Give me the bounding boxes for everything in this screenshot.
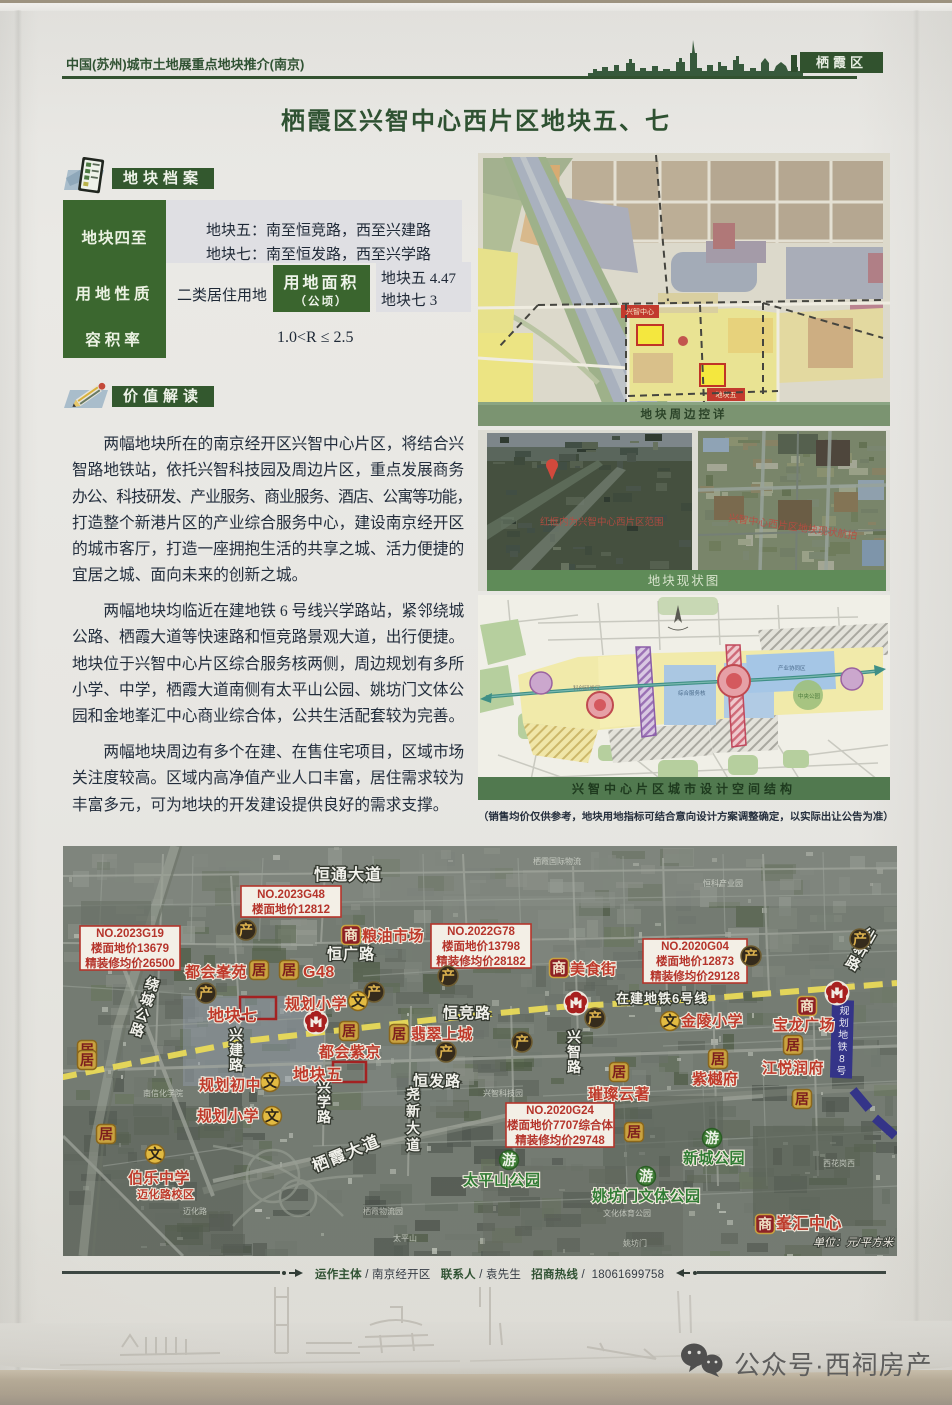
svg-text:产业协同区: 产业协同区 — [778, 664, 806, 672]
svg-text:恒竞路: 恒竞路 — [443, 1004, 491, 1022]
svg-text:游: 游 — [639, 1168, 653, 1184]
svg-text:楼面地价12873: 楼面地价12873 — [656, 954, 734, 968]
svg-text:居: 居 — [282, 962, 296, 978]
svg-text:红框内为兴智中心西片区范围: 红框内为兴智中心西片区范围 — [540, 516, 664, 528]
svg-text:商: 商 — [800, 998, 814, 1014]
svg-text:居: 居 — [711, 1051, 725, 1067]
svg-text:江悦润府: 江悦润府 — [762, 1059, 824, 1077]
svg-text:尧: 尧 — [406, 1086, 420, 1102]
svg-text:新城公园: 新城公园 — [683, 1149, 745, 1167]
svg-text:中央公园: 中央公园 — [798, 692, 821, 700]
svg-text:地块五: 地块五 — [716, 390, 737, 399]
svg-text:太平山公园: 太平山公园 — [463, 1171, 541, 1189]
svg-text:栖霞物流园: 栖霞物流园 — [363, 1206, 403, 1216]
svg-text:文: 文 — [663, 1013, 678, 1029]
svg-text:产: 产 — [439, 1044, 453, 1060]
svg-text:文化体育公园: 文化体育公园 — [603, 1208, 651, 1218]
svg-text:粮油市场: 粮油市场 — [362, 927, 424, 945]
svg-text:路: 路 — [229, 1057, 244, 1073]
svg-text:璀璨云著: 璀璨云著 — [588, 1085, 650, 1103]
svg-text:精装修均价26500: 精装修均价26500 — [85, 956, 174, 970]
svg-text:综合服务核: 综合服务核 — [678, 689, 706, 697]
svg-text:恒科产业园: 恒科产业园 — [703, 878, 743, 888]
svg-text:路: 路 — [317, 1109, 332, 1125]
svg-text:路: 路 — [567, 1059, 582, 1075]
svg-text:地块现状图: 地块现状图 — [648, 574, 721, 588]
svg-text:西花岗西: 西花岗西 — [823, 1158, 855, 1168]
svg-text:文: 文 — [351, 993, 366, 1009]
svg-text:姚坊门文体公园: 姚坊门文体公园 — [591, 1187, 701, 1205]
svg-text:地: 地 — [838, 1028, 849, 1042]
svg-text:地块周边控详: 地块周边控详 — [641, 407, 728, 421]
svg-text:太平山: 太平山 — [393, 1233, 417, 1243]
svg-text:规划小学: 规划小学 — [197, 1107, 259, 1125]
svg-text:居: 居 — [252, 962, 266, 978]
svg-text:产: 产 — [199, 985, 213, 1001]
svg-text:产: 产 — [744, 948, 758, 964]
svg-text:商: 商 — [758, 1216, 772, 1232]
svg-text:NO.2020G04: NO.2020G04 — [661, 941, 729, 953]
svg-text:居: 居 — [627, 1124, 641, 1140]
svg-text:NO.2023G19: NO.2023G19 — [96, 928, 164, 940]
svg-text:恒广路: 恒广路 — [327, 945, 375, 963]
svg-text:居: 居 — [392, 1026, 406, 1042]
svg-text:产: 产 — [588, 1010, 602, 1026]
svg-text:伯乐中学: 伯乐中学 — [128, 1169, 190, 1187]
svg-text:规划初中: 规划初中 — [199, 1076, 261, 1094]
svg-text:产: 产 — [367, 984, 381, 1000]
svg-text:产: 产 — [515, 1034, 529, 1050]
svg-text:居: 居 — [80, 1052, 94, 1068]
svg-text:精装修均价29748: 精装修均价29748 — [515, 1133, 605, 1147]
svg-text:文: 文 — [263, 1074, 278, 1090]
svg-text:规: 规 — [839, 1004, 850, 1018]
svg-text:学: 学 — [317, 1094, 331, 1110]
svg-text:划: 划 — [839, 1016, 850, 1030]
svg-text:翡翠上城: 翡翠上城 — [411, 1025, 473, 1043]
svg-text:地块五: 地块五 — [293, 1065, 343, 1084]
svg-text:商: 商 — [344, 927, 358, 943]
svg-text:姚坊门: 姚坊门 — [623, 1238, 647, 1248]
svg-text:规划小学: 规划小学 — [285, 995, 347, 1013]
svg-text:NO.2020G24: NO.2020G24 — [526, 1105, 594, 1117]
svg-text:NO.2022G78: NO.2022G78 — [447, 926, 515, 938]
svg-text:迈化路: 迈化路 — [183, 1206, 207, 1216]
svg-text:美食街: 美食街 — [570, 960, 617, 978]
svg-text:都会紫京: 都会紫京 — [318, 1043, 381, 1061]
svg-text:栖霞国际物流: 栖霞国际物流 — [533, 856, 581, 866]
svg-text:文: 文 — [148, 1146, 163, 1162]
svg-text:都会峯苑: 都会峯苑 — [184, 963, 247, 981]
svg-text:居: 居 — [612, 1064, 626, 1080]
svg-text:峯汇中心: 峯汇中心 — [775, 1214, 842, 1233]
svg-text:宝龙广场: 宝龙广场 — [773, 1016, 835, 1034]
svg-text:兴智中心: 兴智中心 — [626, 307, 654, 316]
svg-text:新: 新 — [406, 1103, 420, 1119]
svg-text:兴: 兴 — [229, 1027, 243, 1043]
svg-text:居: 居 — [795, 1091, 809, 1107]
svg-text:产: 产 — [853, 931, 867, 947]
svg-text:恒通大道: 恒通大道 — [314, 865, 382, 884]
svg-text:地块七: 地块七 — [208, 1006, 258, 1025]
svg-text:兴智科技园: 兴智科技园 — [483, 1088, 523, 1098]
svg-text:道: 道 — [406, 1137, 420, 1153]
svg-text:科创研发区: 科创研发区 — [573, 684, 601, 692]
svg-text:恒发路: 恒发路 — [413, 1072, 461, 1090]
svg-text:商: 商 — [552, 960, 566, 976]
svg-text:大: 大 — [406, 1120, 420, 1136]
svg-text:G48: G48 — [303, 964, 335, 981]
svg-text:楼面地价7707综合体: 楼面地价7707综合体 — [507, 1118, 614, 1132]
svg-text:游: 游 — [502, 1152, 516, 1168]
svg-text:金陵小学: 金陵小学 — [680, 1012, 743, 1030]
svg-text:楼面地价13798: 楼面地价13798 — [442, 939, 521, 953]
svg-text:兴: 兴 — [567, 1029, 581, 1045]
svg-text:精装修均价29128: 精装修均价29128 — [650, 969, 740, 983]
svg-text:居: 居 — [786, 1037, 800, 1053]
svg-text:居: 居 — [99, 1126, 113, 1142]
svg-text:建: 建 — [229, 1042, 243, 1058]
svg-text:南信化学院: 南信化学院 — [143, 1088, 183, 1098]
svg-text:迈化路校区: 迈化路校区 — [137, 1187, 195, 1201]
svg-text:单位：元/平方米: 单位：元/平方米 — [813, 1236, 894, 1249]
svg-text:智: 智 — [566, 1044, 581, 1060]
svg-text:楼面地价12812: 楼面地价12812 — [252, 902, 330, 916]
svg-text:产: 产 — [441, 968, 455, 984]
svg-text:号: 号 — [836, 1065, 847, 1078]
svg-text:文: 文 — [265, 1108, 280, 1124]
svg-text:楼面地价13679: 楼面地价13679 — [91, 941, 169, 955]
svg-text:紫樾府: 紫樾府 — [692, 1070, 739, 1088]
svg-text:在建地铁6号线: 在建地铁6号线 — [616, 991, 708, 1006]
svg-text:居: 居 — [342, 1023, 356, 1039]
svg-text:NO.2023G48: NO.2023G48 — [257, 889, 325, 901]
svg-text:兴智中心片区城市设计空间结构: 兴智中心片区城市设计空间结构 — [572, 781, 796, 796]
svg-text:产: 产 — [239, 922, 253, 938]
svg-text:游: 游 — [705, 1130, 719, 1146]
svg-text:铁: 铁 — [837, 1040, 848, 1054]
svg-text:8: 8 — [839, 1054, 846, 1065]
